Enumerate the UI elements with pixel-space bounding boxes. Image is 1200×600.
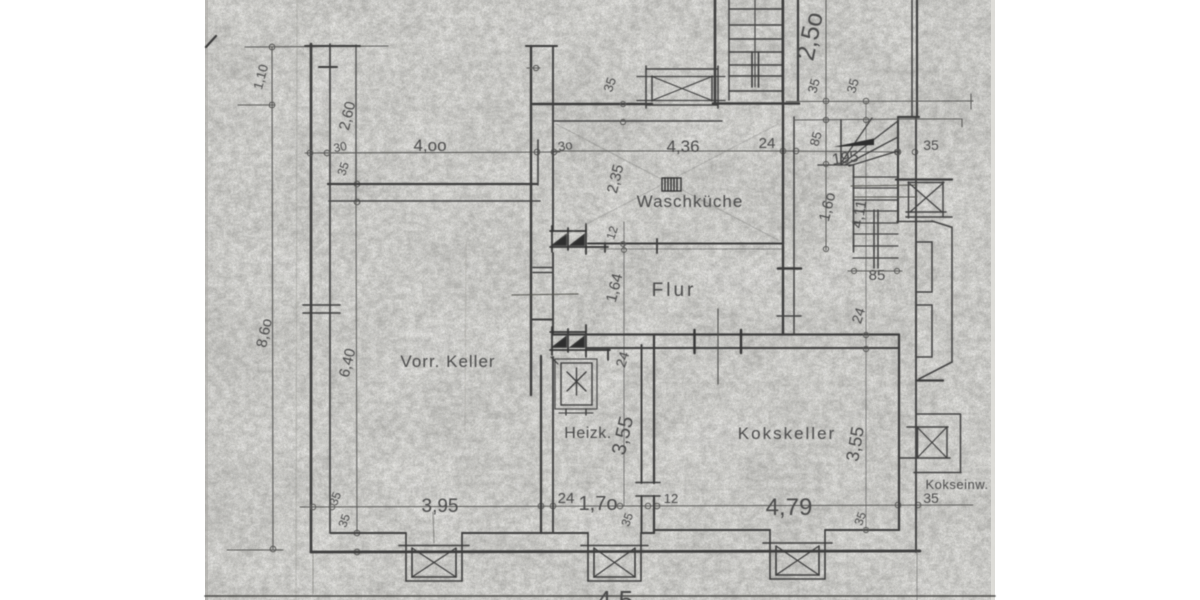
svg-text:Flur: Flur [652,280,697,301]
svg-text:3,95: 3,95 [422,496,459,517]
svg-text:85: 85 [869,267,886,284]
svg-text:3o: 3o [557,137,574,154]
svg-text:24: 24 [558,490,575,507]
svg-text:Heizk.: Heizk. [564,425,611,442]
svg-text:12: 12 [664,491,678,506]
svg-text:4,79: 4,79 [766,494,813,521]
svg-text:Kokseinw.: Kokseinw. [925,477,988,492]
svg-text:Waschküche: Waschküche [637,192,744,211]
svg-text:1,7o: 1,7o [579,493,618,515]
svg-text:4,5: 4,5 [597,585,633,600]
svg-text:4,36: 4,36 [666,137,699,156]
svg-text:35: 35 [923,137,939,153]
svg-text:Kokskeller: Kokskeller [738,424,836,443]
svg-text:35: 35 [923,490,939,506]
svg-text:24: 24 [759,135,776,152]
svg-text:4,oo: 4,oo [413,136,446,155]
svg-text:Vorr. Keller: Vorr. Keller [400,352,495,371]
